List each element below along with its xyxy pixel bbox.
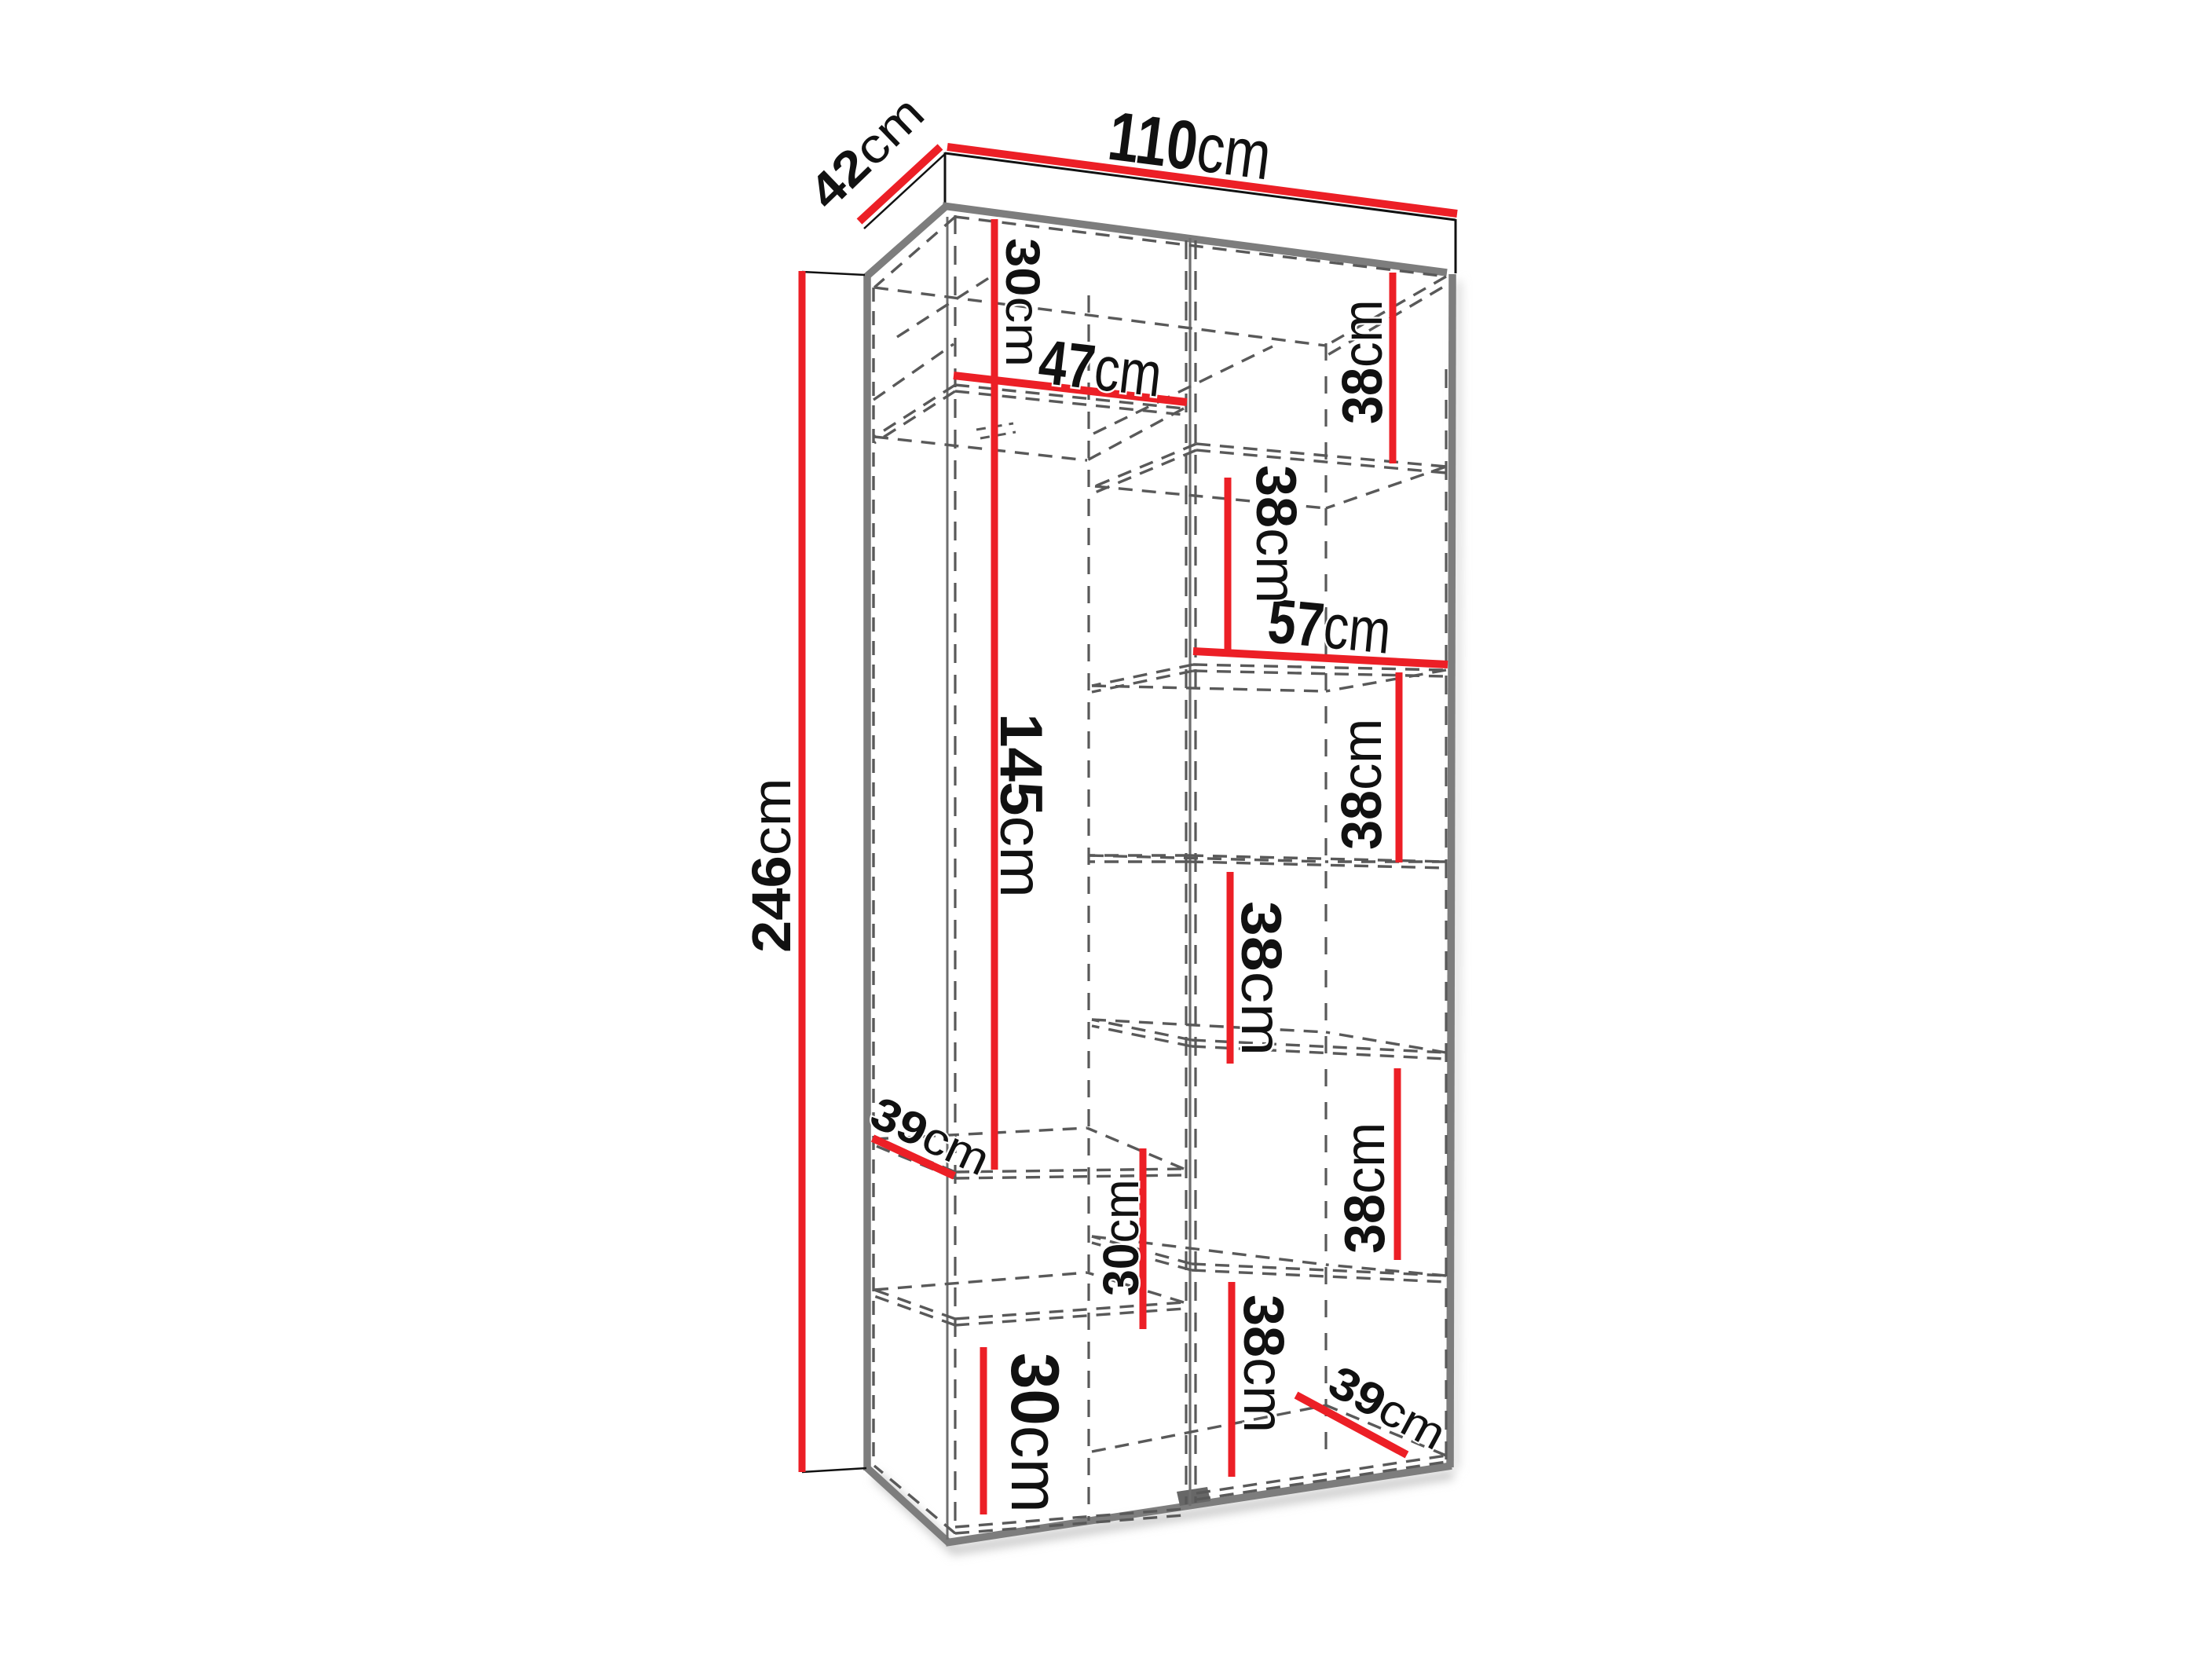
svg-text:38cm: 38cm xyxy=(1329,719,1393,850)
svg-text:145cm: 145cm xyxy=(987,713,1054,898)
svg-text:38cm: 38cm xyxy=(1244,465,1307,603)
svg-text:246cm: 246cm xyxy=(742,778,803,953)
svg-text:47cm: 47cm xyxy=(1035,327,1166,411)
svg-text:38cm: 38cm xyxy=(1232,1295,1295,1433)
svg-text:38cm: 38cm xyxy=(1331,300,1394,424)
svg-text:38cm: 38cm xyxy=(1332,1122,1396,1254)
svg-text:30cm: 30cm xyxy=(998,1353,1073,1513)
svg-text:38cm: 38cm xyxy=(1229,901,1292,1056)
svg-text:30cm: 30cm xyxy=(1093,1179,1150,1296)
